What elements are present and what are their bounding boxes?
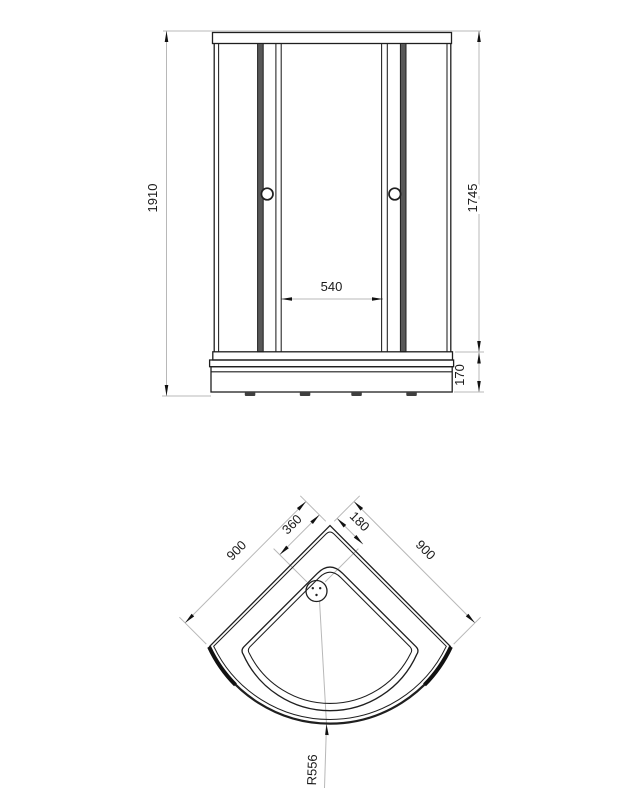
dim-front-radius: R556 bbox=[304, 754, 320, 786]
dim-tray-height: 170 bbox=[452, 364, 467, 386]
arrow-overall-bottom bbox=[165, 385, 169, 396]
arrow-opening-left bbox=[281, 297, 292, 301]
arrow-tray-bottom bbox=[477, 381, 481, 392]
arrow-900L-lower bbox=[185, 614, 194, 623]
dim-frame-height: 1745 bbox=[465, 184, 480, 213]
tray-basin-rim-inner bbox=[248, 572, 411, 703]
tray-basin-rim-outer bbox=[242, 567, 418, 711]
arrow-900R-lower bbox=[466, 614, 475, 623]
tray-inner-outline bbox=[214, 532, 447, 719]
ext-apex-upleft bbox=[300, 496, 326, 522]
front-dimension-arrows bbox=[165, 31, 481, 396]
tray-front-arc-end-right bbox=[425, 647, 451, 685]
dim-drain-offset-right: 180 bbox=[347, 508, 373, 534]
dim-opening-width: 540 bbox=[321, 279, 343, 294]
radius-leader-line bbox=[320, 601, 327, 789]
arrow-180-lower bbox=[354, 535, 363, 544]
arrow-frame-top bbox=[477, 31, 481, 42]
right-door-handle bbox=[389, 188, 401, 200]
drain-hole bbox=[315, 594, 317, 596]
tray-wall-edges bbox=[209, 526, 451, 647]
arrow-frame-bottom bbox=[477, 341, 481, 352]
arrow-360-upper bbox=[310, 515, 319, 524]
ext-corner-left bbox=[179, 617, 206, 644]
plan-view: 360 180 900 900 R556 bbox=[179, 496, 480, 788]
drain bbox=[306, 581, 327, 602]
front-dimension-lines bbox=[162, 31, 484, 396]
tray-foot bbox=[406, 392, 417, 396]
dim-side-right: 900 bbox=[413, 537, 439, 563]
tray-rim-upper bbox=[213, 352, 453, 360]
drain-hole bbox=[319, 587, 321, 589]
dim-line-side-right bbox=[354, 502, 475, 623]
arrow-360-lower bbox=[280, 546, 289, 555]
technical-drawing: 1910 1745 170 540 bbox=[0, 0, 633, 800]
tray-foot bbox=[300, 392, 311, 396]
drain-hole bbox=[312, 587, 314, 589]
tray-foot bbox=[351, 392, 362, 396]
plan-dimension-lines bbox=[179, 496, 480, 788]
arrow-900L-upper bbox=[297, 502, 306, 511]
dim-overall-height: 1910 bbox=[145, 184, 160, 213]
drawing-sheet: 1910 1745 170 540 bbox=[0, 0, 633, 800]
arrow-overall-top bbox=[165, 31, 169, 42]
left-door-handle bbox=[261, 188, 273, 200]
dim-side-left: 900 bbox=[223, 537, 249, 563]
drain-circle bbox=[306, 581, 327, 602]
plan-dimension-arrows bbox=[185, 502, 475, 736]
arrow-180-upper bbox=[337, 518, 346, 527]
tray-outline bbox=[209, 526, 451, 724]
ext-corner-right bbox=[454, 617, 481, 644]
tray-skirt bbox=[211, 367, 452, 392]
cabin-structure bbox=[210, 33, 454, 397]
top-rail bbox=[213, 33, 452, 44]
tray-rim-lower bbox=[210, 360, 454, 367]
tray-foot bbox=[245, 392, 256, 396]
right-door-stile bbox=[400, 44, 406, 352]
tray-front-arc-end-left bbox=[209, 647, 235, 685]
arrow-tray-top bbox=[477, 353, 481, 364]
front-elevation-view: 1910 1745 170 540 bbox=[145, 31, 484, 396]
